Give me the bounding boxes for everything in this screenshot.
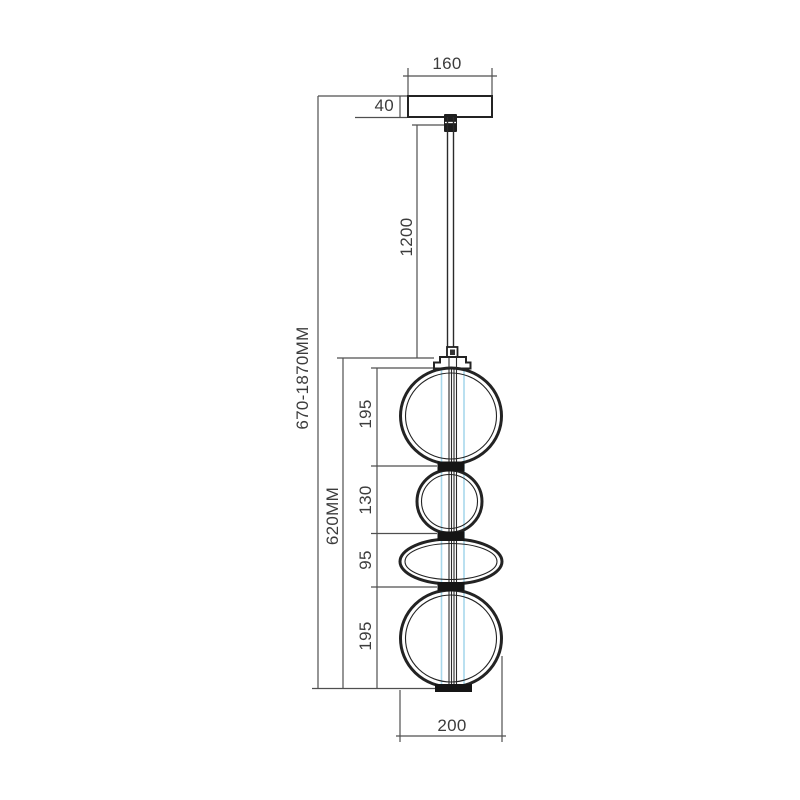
dimension-drawing-svg: 160 40 670-1870MM 620MM 195 130 <box>0 0 800 800</box>
dim-segments: 195 130 95 195 <box>356 368 437 688</box>
dim-fixture-height: 620MM <box>323 358 434 688</box>
dim-cord-length: 1200 <box>397 125 446 358</box>
dim-canopy-height: 40 <box>355 96 407 118</box>
fixture-height-label: 620MM <box>323 487 342 545</box>
segment-lower-mid-label: 95 <box>356 550 375 570</box>
bottom-end-cap <box>435 684 472 692</box>
lamp-cap-rod-detail <box>449 357 457 368</box>
ceiling-canopy <box>408 96 492 117</box>
dim-overall-height: 670-1870MM <box>293 96 436 689</box>
cord-length-label: 1200 <box>397 217 416 256</box>
canopy-height-label: 40 <box>374 96 394 115</box>
segment-upper-mid-label: 130 <box>356 485 375 514</box>
pendant-lamp-dimension-diagram: 160 40 670-1870MM 620MM 195 130 <box>0 0 800 800</box>
top-nut <box>447 347 458 357</box>
central-rod <box>449 368 457 684</box>
cord-grip <box>444 114 457 132</box>
canopy-width-label: 160 <box>432 54 461 73</box>
segment-top-label: 195 <box>356 399 375 428</box>
segment-bottom-label: 195 <box>356 621 375 650</box>
bottom-width-label: 200 <box>437 716 466 735</box>
dim-canopy-width: 160 <box>403 54 497 95</box>
overall-height-label: 670-1870MM <box>293 326 312 429</box>
suspension-cord <box>448 117 454 348</box>
